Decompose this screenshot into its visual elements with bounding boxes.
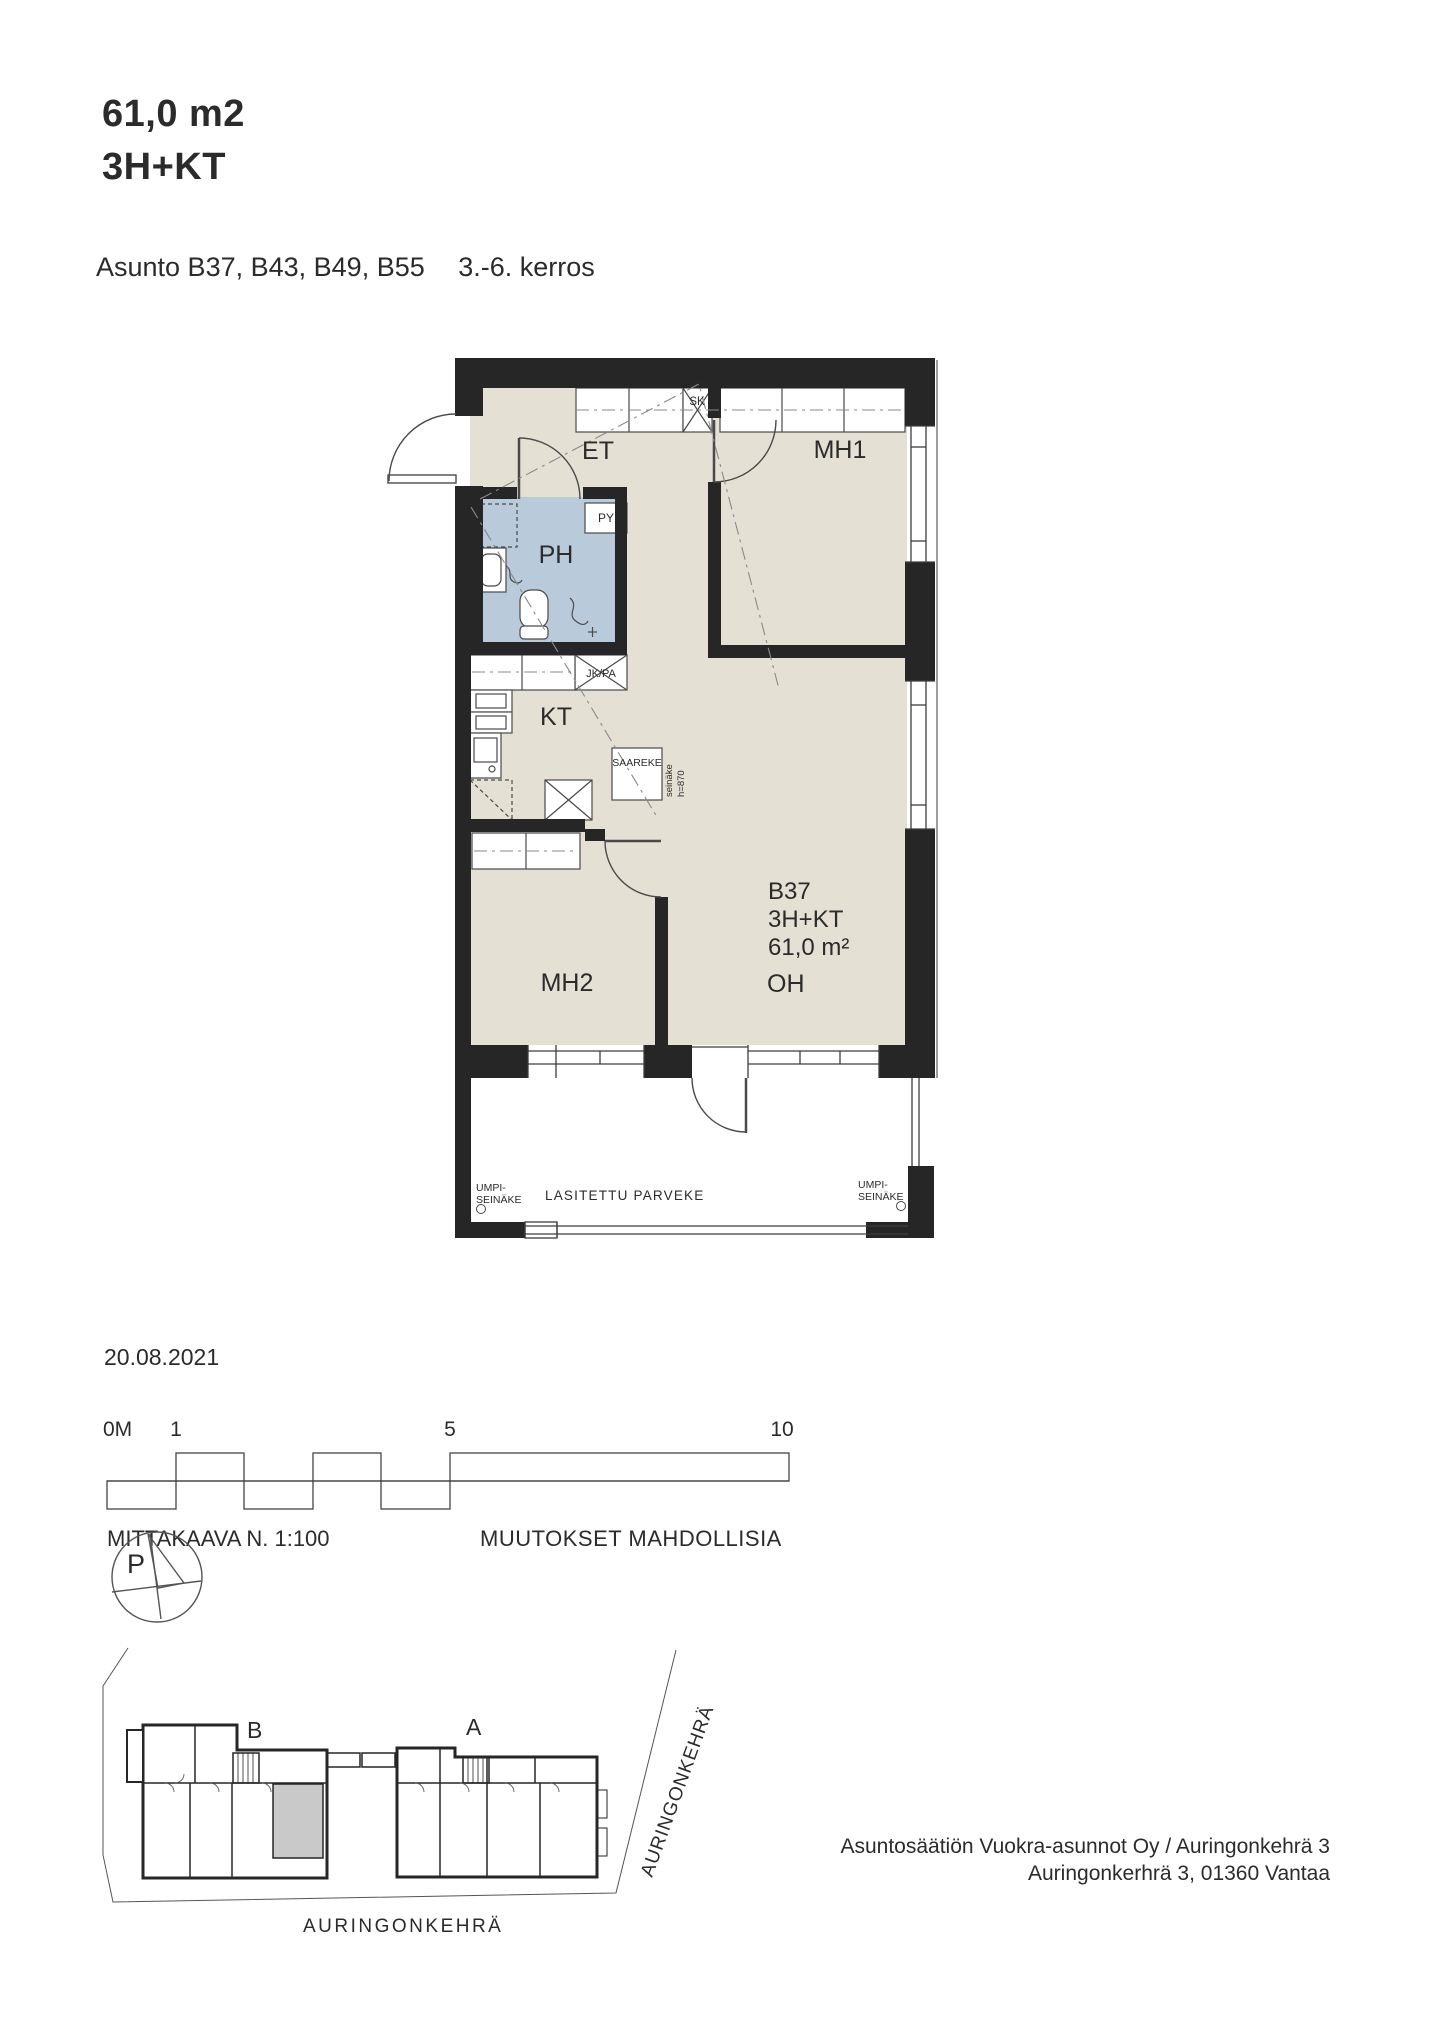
footer-line1: Asuntosäätiön Vuokra-asunnot Oy / Auring… [840,1833,1330,1860]
room-label-ph: PH [539,541,574,569]
floor-plan-drawing: ET MH1 PH KT MH2 OH B37 3H+KT 61,0 m² SK… [380,350,960,1250]
site-plan: B A AURINGONKEHRÄ AURINGONKEHRÄ [70,1630,700,1970]
toilet [520,590,548,628]
subtitle-apartments: Asunto B37, B43, B49, B55 [96,252,425,282]
north-arrow: P [105,1522,217,1634]
room-label-kt: KT [540,703,572,731]
site-bridge [327,1753,395,1767]
scale-tick-5: 5 [444,1418,456,1441]
changes-possible-text: MUUTOKSET MAHDOLLISIA [480,1526,782,1552]
scale-bar: 0M 1 5 10 [100,1412,800,1517]
highlighted-unit [273,1784,323,1858]
plan-date: 20.08.2021 [104,1344,219,1371]
north-label: P [127,1549,145,1579]
floor-fills [470,385,908,1224]
label-balcony: LASITETTU PARVEKE [545,1188,704,1203]
room-label-mh1: MH1 [814,436,867,464]
label-umpi-right-2: SEINÄKE [858,1191,904,1203]
scale-tick-1: 1 [170,1418,182,1441]
scale-tick-10: 10 [770,1418,793,1441]
scale-bar-shape [107,1453,789,1509]
unit-id: B37 [768,878,811,905]
subtitle-floors: 3.-6. kerros [458,252,595,282]
kitchen-sink [470,733,501,778]
entry-door-leaf [388,475,456,483]
street-label: AURINGONKEHRÄ [303,1916,503,1937]
label-py: PY [598,511,614,525]
title-area: 61,0 m2 [102,88,245,141]
room-label-et: ET [582,437,614,465]
subtitle: Asunto B37, B43, B49, B55 3.-6. kerros [96,252,595,283]
site-building-a [397,1748,607,1877]
footer-address: Asuntosäätiön Vuokra-asunnot Oy / Auring… [840,1833,1330,1887]
kitchen-island [612,748,662,800]
label-sk: SK [689,396,705,408]
label-jkpa: JK/PA [586,668,616,680]
balcony-left-wall [455,1078,471,1238]
street-label-rotated: AURINGONKEHRÄ [637,1703,719,1880]
building-b-label: B [247,1717,262,1743]
site-building-b [127,1725,327,1878]
unit-type: 3H+KT [768,906,844,933]
scale-tick-0: 0M [103,1418,132,1441]
footer-line2: Auringonkerhrä 3, 01360 Vantaa [840,1860,1330,1887]
page-title: 61,0 m2 3H+KT [102,88,245,194]
label-seinake: seinäke [664,764,675,797]
label-umpi-left-1: UMPI- [476,1182,506,1194]
building-a-label: A [466,1714,482,1740]
title-type: 3H+KT [102,141,245,194]
room-label-oh: OH [767,970,805,998]
label-umpi-right-1: UMPI- [858,1179,888,1191]
unit-area: 61,0 m² [768,934,849,961]
room-label-mh2: MH2 [541,969,594,997]
north-arrow-shape [112,1532,202,1622]
floorplan-page: 61,0 m2 3H+KT Asunto B37, B43, B49, B55 … [0,0,1440,2036]
label-umpi-left-2: SEINÄKE [476,1194,522,1206]
label-saareke: SAAREKE [612,757,662,769]
label-seinake-h: h=870 [676,770,687,797]
entry-door-swing [389,414,456,481]
